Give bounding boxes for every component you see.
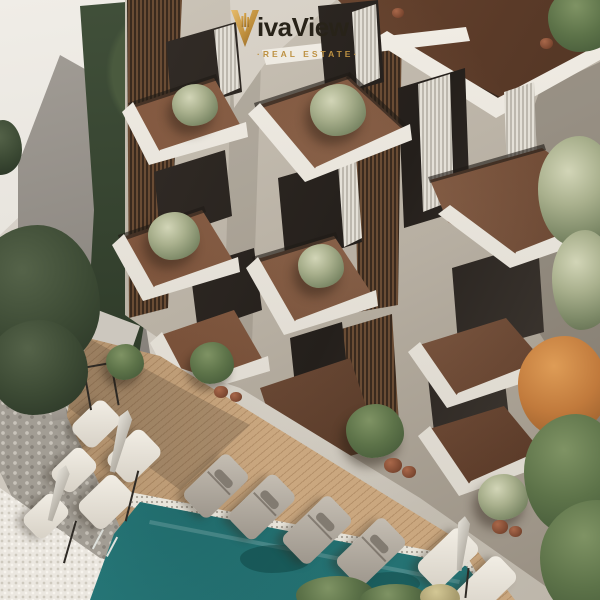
roof-planter — [540, 38, 553, 49]
potted-tree — [106, 344, 144, 380]
olive-tree — [172, 84, 218, 126]
plant-pot — [492, 520, 508, 534]
plant-pot — [402, 466, 416, 478]
potted-tree — [478, 474, 528, 520]
roof-planter — [392, 8, 404, 18]
potted-tree — [190, 342, 234, 384]
plant-pot — [230, 392, 242, 402]
olive-tree — [298, 244, 344, 288]
property-render: ivaView ·REAL ESTATE· — [0, 0, 600, 600]
logo-tagline: ·REAL ESTATE· — [257, 49, 369, 59]
potted-tree — [346, 404, 404, 458]
plant-pot — [214, 386, 228, 398]
logo: ivaView ·REAL ESTATE· — [229, 8, 369, 59]
plant-pot — [384, 458, 402, 473]
olive-tree — [148, 212, 200, 260]
plant-pot — [509, 526, 522, 537]
olive-tree — [310, 84, 366, 136]
logo-wordmark: ivaView — [257, 14, 348, 40]
